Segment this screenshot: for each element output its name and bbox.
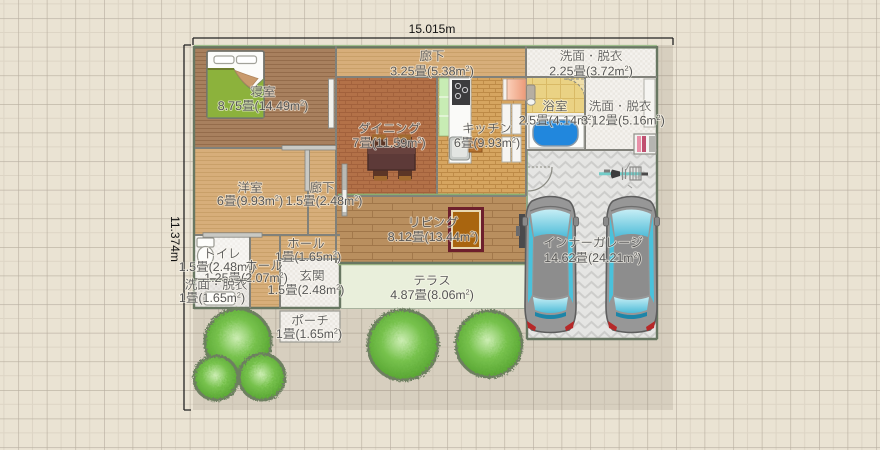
svg-text:11.374m: 11.374m	[168, 216, 182, 262]
svg-text:15.015m: 15.015m	[409, 22, 456, 36]
